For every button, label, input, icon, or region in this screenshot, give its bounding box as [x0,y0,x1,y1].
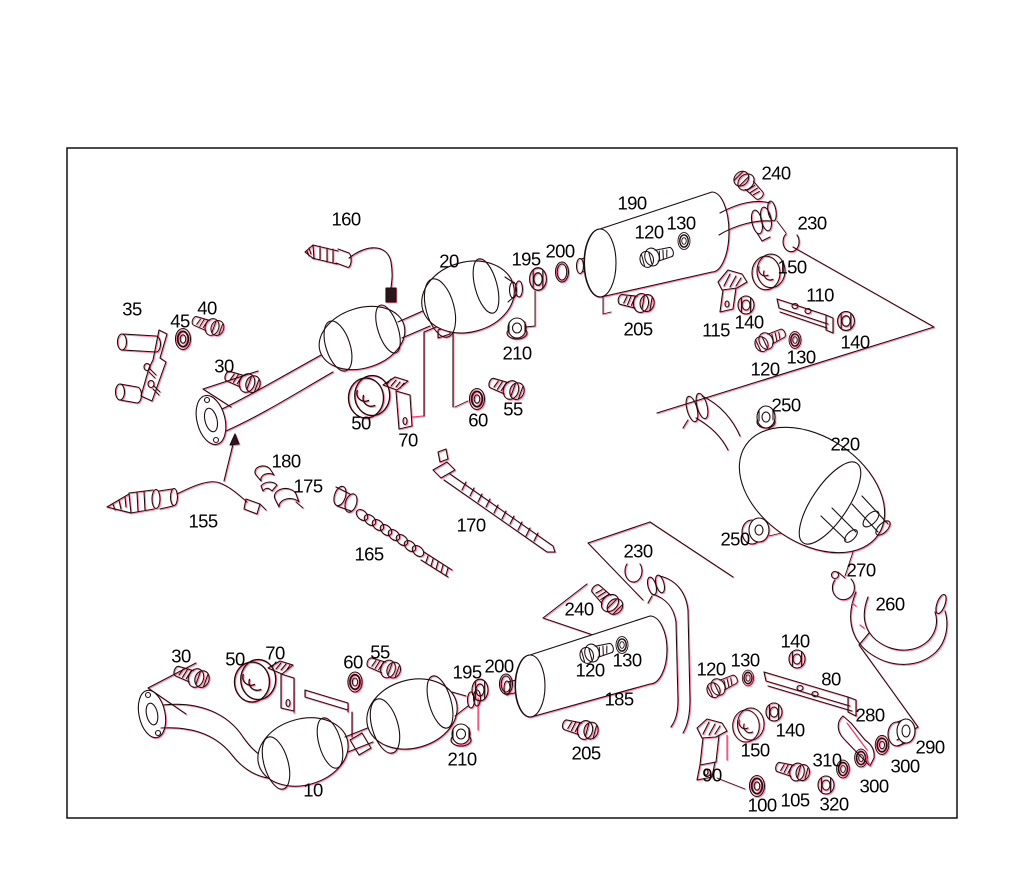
part-callout-50: 50 [225,649,245,670]
part-callout-55: 55 [370,642,390,663]
part-callout-30: 30 [214,356,234,377]
part-callout-290: 290 [915,737,944,758]
part-callout-230: 230 [797,213,826,234]
part-callout-120: 120 [696,659,725,680]
part-callout-60: 60 [343,652,363,673]
part-callout-240: 240 [761,163,790,184]
oxygen-sensor-160 [305,245,396,302]
part-callout-130: 130 [730,650,759,671]
bracket-70-lower [268,661,294,711]
gasket-nut-195-upper [530,268,547,291]
part-callout-140: 140 [775,720,804,741]
part-callout-205: 205 [623,319,652,340]
part-callout-140: 140 [840,332,869,353]
bolt-205-lower [560,715,600,743]
part-callout-30: 30 [171,646,191,667]
part-callout-105: 105 [780,790,809,811]
part-callout-55: 55 [503,399,523,420]
part-callout-200: 200 [545,241,574,262]
part-callout-165: 165 [354,544,383,565]
part-callout-210: 210 [502,343,531,364]
bolt-205-upper [617,290,656,315]
parts-diagram-page: 1601902402301301202019520015011035404511… [0,0,1024,874]
washer-45 [176,329,191,350]
part-callout-270: 270 [846,560,875,581]
part-callout-190: 190 [617,193,646,214]
rear-muffler-220 [683,392,908,579]
part-callout-70: 70 [398,430,418,451]
part-callout-130: 130 [786,347,815,368]
part-callout-300: 300 [890,756,919,777]
flex-guide-165 [332,485,452,577]
part-callout-230: 230 [623,541,652,562]
part-callout-195: 195 [452,662,481,683]
clamp-ring-230-upper [783,234,799,252]
bracket-35 [116,330,168,403]
part-callout-180: 180 [271,451,300,472]
part-callout-155: 155 [188,511,217,532]
part-callout-210: 210 [447,749,476,770]
part-callout-205: 205 [571,743,600,764]
part-callout-310: 310 [812,750,841,771]
part-callout-120: 120 [575,660,604,681]
part-callout-240: 240 [564,599,593,620]
part-callout-170: 170 [456,515,485,536]
part-callout-260: 260 [875,594,904,615]
cable-tie-170 [433,449,555,552]
part-callout-20: 20 [439,251,459,272]
flange-nut-210-upper [507,318,527,339]
front-pipe-upper [191,354,333,448]
part-callout-70: 70 [265,643,285,664]
part-callout-200: 200 [484,656,513,677]
catalytic-converter-20 [311,251,523,380]
washer-60-upper [470,389,485,410]
part-callout-110: 110 [806,285,834,306]
part-callout-160: 160 [331,209,360,230]
part-callout-130: 130 [666,213,695,234]
clamp-ring-230-mid [625,564,642,582]
part-callout-10: 10 [303,780,323,801]
part-callout-150: 150 [777,257,806,278]
part-callout-80: 80 [821,669,841,690]
part-callout-90: 90 [702,765,722,786]
part-callout-40: 40 [197,298,217,319]
seal-ring-200-lower [500,674,513,694]
part-callout-50: 50 [351,413,371,434]
part-callout-115: 115 [702,320,730,341]
bushing-290 [888,719,915,746]
part-callout-60: 60 [468,410,488,431]
part-callout-195: 195 [511,249,540,270]
part-callout-320: 320 [819,794,848,815]
part-callout-280: 280 [855,705,884,726]
flange-nut-210-lower [451,724,471,746]
part-callout-300: 300 [859,776,888,797]
part-callout-220: 220 [830,434,859,455]
part-callout-175: 175 [293,476,322,497]
part-callout-140: 140 [780,631,809,652]
exhaust-parts-diagram: 1601902402301301202019520015011035404511… [0,0,1024,874]
catalytic-converters-10 [250,669,481,797]
part-callout-120: 120 [750,359,779,380]
part-callout-120: 120 [634,222,663,243]
center-muffler-190 [577,192,778,297]
oxygen-sensor-155 [107,434,266,514]
part-callout-45: 45 [170,311,190,332]
part-callout-250: 250 [720,529,749,550]
washer-60-lower [348,672,362,692]
part-callout-140: 140 [734,312,763,333]
part-callout-150: 150 [740,740,769,761]
part-callout-250: 250 [771,395,800,416]
seal-ring-200-upper [556,262,569,282]
part-callout-130: 130 [612,650,641,671]
part-callout-35: 35 [122,299,142,320]
part-callout-100: 100 [747,795,776,816]
part-callout-185: 185 [604,689,633,710]
